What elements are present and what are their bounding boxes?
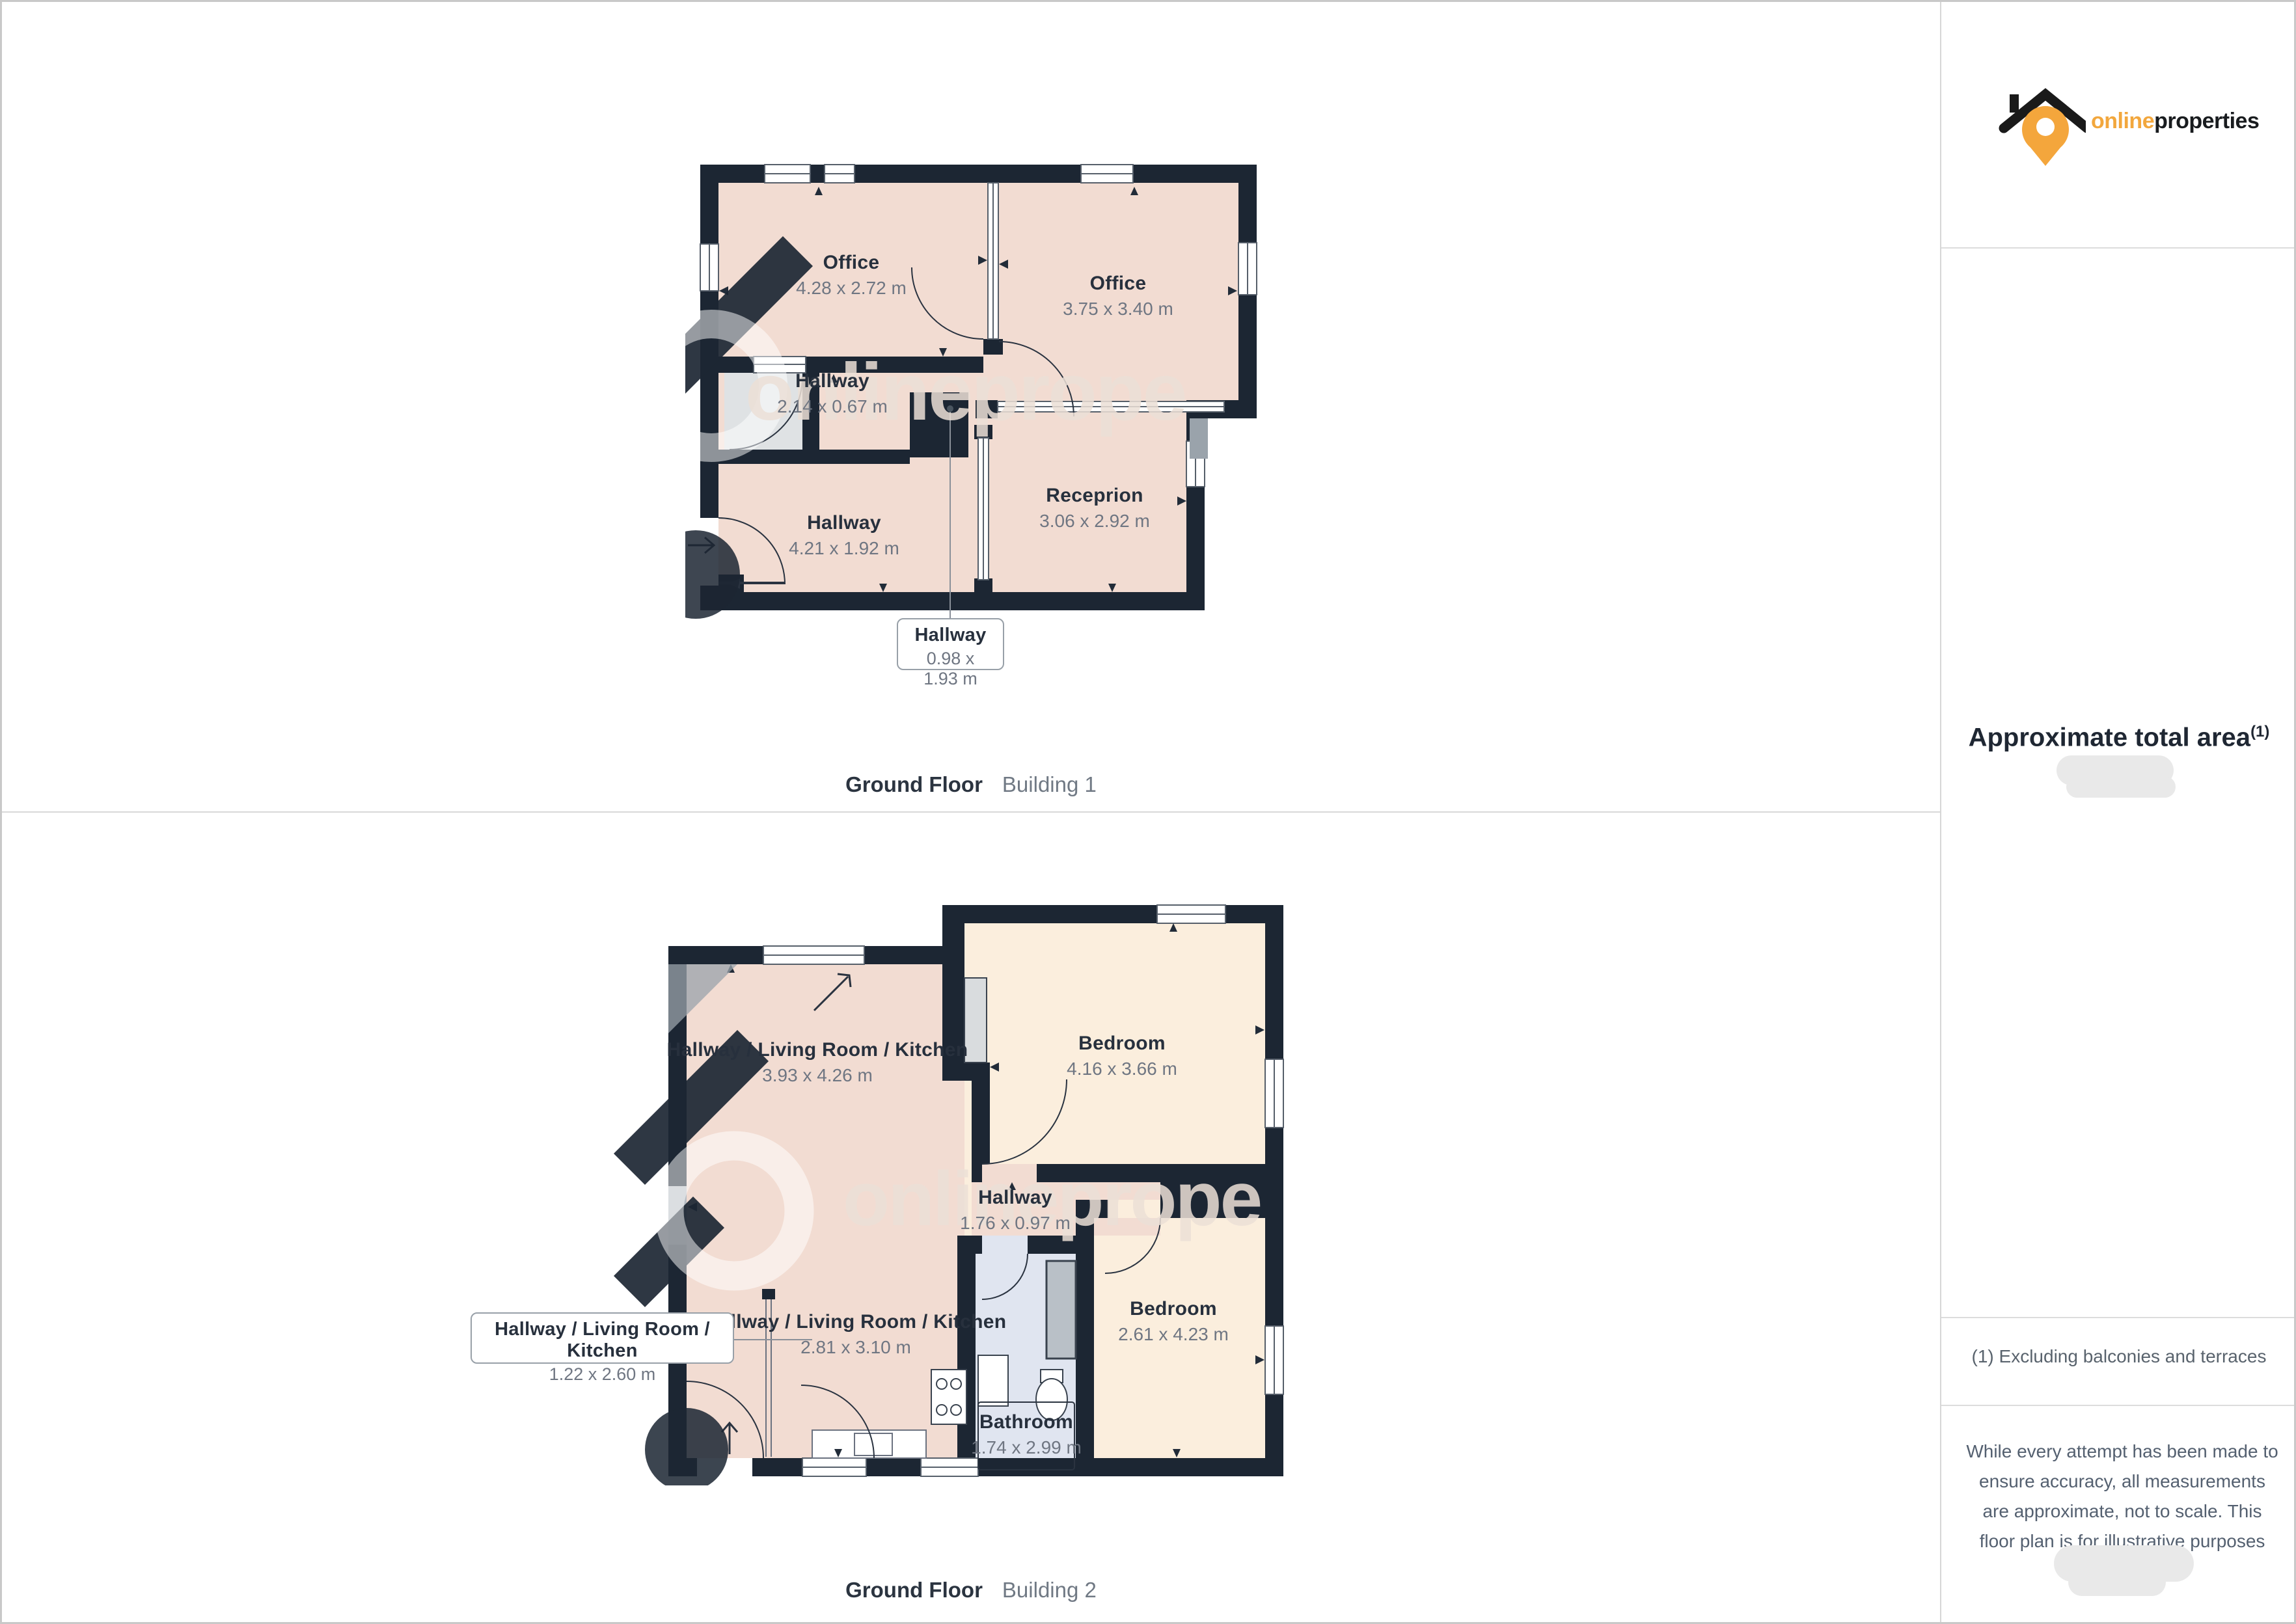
- corner-gray-block: [1190, 418, 1208, 459]
- wardrobe: [964, 978, 987, 1062]
- caption-floor-name: Ground Floor: [845, 772, 983, 796]
- sink: [978, 1355, 1008, 1406]
- total-area-heading: Approximate total area(1): [1940, 723, 2296, 752]
- counter: [812, 1430, 926, 1458]
- panel-divider: [2, 811, 1940, 813]
- caption-building-name: Building 1: [1002, 772, 1097, 796]
- callout-hallway: Hallway 0.98 x 1.93 m: [897, 618, 1004, 670]
- floor-caption-building-2: Ground FloorBuilding 2: [2, 1578, 1940, 1603]
- sidebar-divider: [1941, 247, 2296, 249]
- logo-house-pin-icon: [1988, 75, 2086, 172]
- room-dims: 0.98 x 1.93 m: [907, 649, 994, 689]
- total-area-heading-sup: (1): [2250, 723, 2269, 740]
- shower-panel: [1046, 1261, 1076, 1359]
- brand-text: onlineproperties: [2091, 109, 2259, 134]
- toilet: [1036, 1379, 1067, 1420]
- callout-hlk: Hallway / Living Room / Kitchen 1.22 x 2…: [471, 1312, 734, 1364]
- room-name: Hallway: [907, 625, 994, 646]
- brand-text-properties: properties: [2154, 109, 2259, 133]
- floor-plan-building-2: onlineprope Hallway / Living Room / Kitc…: [458, 900, 1297, 1485]
- stove: [931, 1370, 966, 1424]
- caption-floor-name: Ground Floor: [845, 1578, 983, 1602]
- sidebar-left-border: [1940, 2, 1941, 1624]
- caption-building-name: Building 2: [1002, 1578, 1097, 1602]
- floorplan-page: onlineprope Office 4.28 x 2.72 m Office …: [0, 0, 2296, 1624]
- brand-text-online: online: [2091, 109, 2154, 133]
- floor-plan-building-1: onlineprope Office 4.28 x 2.72 m Office …: [685, 158, 1271, 679]
- watermark-text: onlineprope: [745, 347, 1186, 437]
- room-dims: 1.22 x 2.60 m: [481, 1364, 724, 1385]
- sidebar-divider: [1941, 1317, 2296, 1318]
- floor-caption-building-1: Ground FloorBuilding 1: [2, 772, 1940, 797]
- brand-logo: onlineproperties: [1980, 75, 2286, 179]
- room-name: Hallway / Living Room / Kitchen: [481, 1319, 724, 1362]
- footnote-text: (1) Excluding balconies and terraces: [1940, 1346, 2296, 1367]
- total-area-redacted-value: [2066, 776, 2176, 798]
- total-area-heading-text: Approximate total area: [1969, 723, 2250, 751]
- watermark-text: onlineprope: [843, 1156, 1261, 1242]
- sidebar-divider: [1941, 1405, 2296, 1406]
- floor-plan-1-drawing: onlineprope: [685, 158, 1271, 679]
- floor-plan-2-drawing: onlineprope: [458, 900, 1297, 1485]
- disclaimer-redacted-value: [2068, 1569, 2166, 1596]
